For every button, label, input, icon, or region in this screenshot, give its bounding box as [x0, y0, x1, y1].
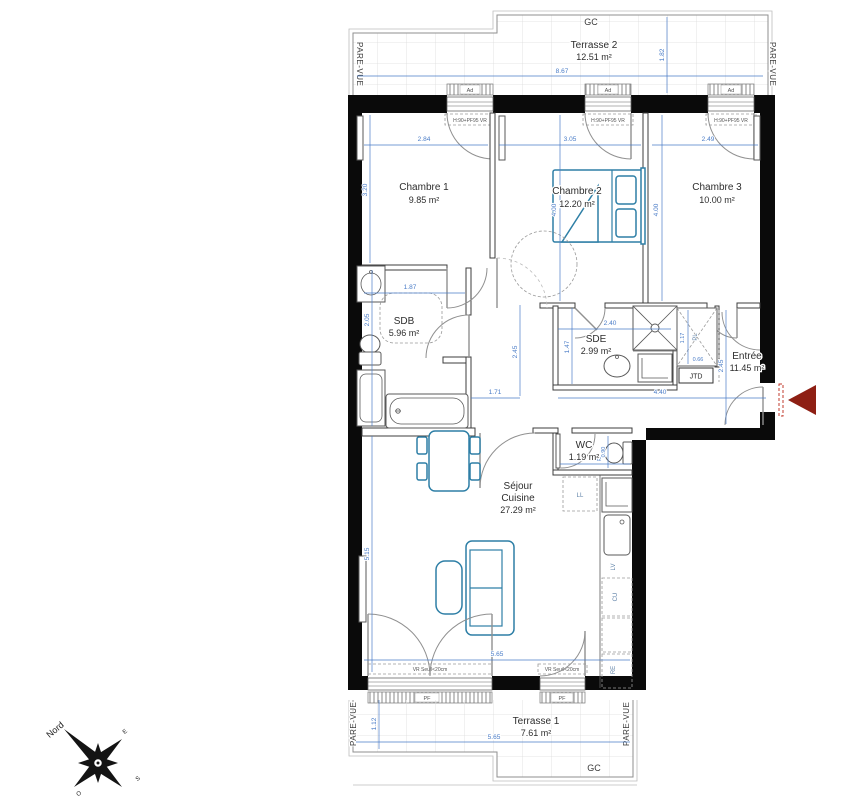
terrace-1: Terrasse 1 7.61 m² GC PARE-VUE PARE-VUE … — [349, 700, 637, 785]
window-tag: Ad — [728, 88, 735, 94]
dim-label: 1.82 — [659, 48, 666, 61]
dim-label: 1.87 — [404, 284, 417, 291]
sdb-bathtub — [386, 394, 468, 428]
room-area-wc: 1.19 m² — [569, 452, 600, 462]
window-tag: Ad — [467, 88, 474, 94]
entrance-marker — [779, 384, 816, 416]
dim-label: 5.65 — [491, 651, 504, 658]
ll-label: LL — [577, 493, 584, 499]
door-sdb — [426, 315, 469, 358]
terrace-2-area: 12.51 m² — [576, 52, 612, 62]
gc-label-bottom: GC — [587, 763, 601, 773]
sdb-toilet — [359, 335, 381, 365]
room-area-sdb: 5.96 m² — [389, 328, 420, 338]
dining-table — [417, 431, 480, 491]
compass-center-dot — [97, 762, 100, 765]
room-name-sdb: SDB — [394, 316, 415, 327]
compass-west-label: O — [76, 790, 84, 798]
room-name-sejour: Séjour — [504, 481, 534, 492]
compass-east-label: E — [122, 729, 129, 736]
dim-label: 1.12 — [371, 717, 378, 730]
lv-label: LV — [611, 564, 617, 571]
door-chambre2 — [497, 258, 547, 308]
room-area-chambre1: 9.85 m² — [409, 195, 440, 205]
pl-label: PL — [693, 333, 699, 341]
room-area-chambre3: 10.00 m² — [699, 195, 735, 205]
dim-label: 8.67 — [556, 68, 569, 75]
dim-label: 1.47 — [564, 340, 571, 353]
compass-north-label: Nord — [44, 720, 65, 740]
room-name-sde: SDE — [586, 334, 607, 345]
room-name-chambre2: Chambre 2 — [552, 186, 602, 197]
window-tag: Ad — [605, 88, 612, 94]
kitchen-unit-dashed — [602, 618, 632, 652]
pare-vue-bottom-right: PARE-VUE — [622, 702, 631, 746]
window-chambre2: Ad H:90+PF95 VR — [583, 84, 633, 159]
entrance-arrow-icon — [788, 385, 816, 415]
kitchen-cabinet — [602, 478, 632, 512]
compass-south-label: S — [135, 776, 142, 783]
floor-plan: GC Terrasse 2 12.51 m² PARE-VUE PARE-VUE… — [0, 0, 863, 800]
dim-label: 2.40 — [604, 320, 617, 327]
dim-label: 0.66 — [693, 357, 704, 363]
wc-toilet — [605, 442, 632, 464]
dim-label: 2.49 — [702, 136, 715, 143]
terrace-1-tiles — [353, 700, 633, 752]
dim-label: 5.65 — [488, 734, 501, 741]
dim-label: 4.00 — [653, 203, 660, 216]
window-note: H:90+PF95 VR — [591, 118, 625, 124]
dim-label: 0.90 — [601, 447, 607, 458]
dim-label: 3.05 — [564, 136, 577, 143]
pare-vue-bottom-left: PARE-VUE — [349, 702, 358, 746]
re-label: RE — [611, 666, 617, 674]
dim-label: 1.17 — [680, 333, 686, 344]
window-note: H:90+PF95 VR — [714, 118, 748, 124]
dim-label: 4.00 — [551, 203, 558, 216]
room-area-chambre2: 12.20 m² — [559, 199, 595, 209]
dim-label: 2.45 — [512, 345, 519, 358]
radiator — [499, 116, 505, 160]
door-entree-closet — [722, 312, 760, 350]
terrace-2-tiles — [497, 15, 768, 95]
room-area-sde: 2.99 m² — [581, 346, 612, 356]
room-name-chambre1: Chambre 1 — [399, 182, 449, 193]
sdb-vanity — [357, 370, 385, 426]
dim-label: 5.15 — [364, 547, 371, 560]
jtd-label: JTD — [690, 374, 703, 381]
window-chambre1: Ad H:90+PF95 VR — [445, 84, 495, 159]
door-sejour — [480, 433, 535, 488]
compass-rose: Nord E S O — [44, 720, 141, 798]
dim-label: 4.40 — [654, 389, 667, 396]
dim-label: 3.20 — [362, 183, 369, 196]
terrace-1-name: Terrasse 1 — [513, 716, 560, 727]
coffee-table — [436, 561, 462, 614]
room-name-wc: WC — [576, 440, 593, 451]
dim-label: 2.05 — [364, 313, 371, 326]
dim-label: 2.45 — [718, 359, 725, 372]
dim-label: 1.71 — [489, 389, 502, 396]
terrace-1-tiles — [497, 752, 633, 777]
terrace-2: GC Terrasse 2 12.51 m² PARE-VUE PARE-VUE… — [349, 11, 777, 95]
radiator — [357, 116, 363, 160]
jtd-box: JTD — [679, 368, 713, 383]
sde-washbasin — [604, 355, 630, 377]
room-name-entree: Entrée — [732, 351, 762, 362]
window-chambre3: Ad H:90+PF95 VR — [706, 84, 756, 159]
room-name-chambre3: Chambre 3 — [692, 182, 742, 193]
window-pf2: VR Seuil<20cm PF — [538, 631, 587, 703]
door-entrance — [725, 387, 763, 425]
terrace-1-area: 7.61 m² — [521, 728, 552, 738]
room-area-entree: 11.45 m² — [730, 363, 765, 373]
gc-label-top: GC — [584, 17, 598, 27]
cu-label: CU — [613, 593, 619, 602]
sofa — [466, 541, 514, 635]
dim-label: 2.84 — [418, 136, 431, 143]
room-name-cuisine: Cuisine — [501, 493, 535, 504]
sde-shower — [633, 306, 677, 350]
sde-washer — [638, 354, 672, 382]
radiator — [359, 556, 366, 622]
pare-vue-top-right: PARE-VUE — [768, 42, 777, 86]
room-area-sejour: 27.29 m² — [500, 505, 536, 515]
entrance-door-dashed — [779, 384, 783, 416]
floor-plan-drawing: GC Terrasse 2 12.51 m² PARE-VUE PARE-VUE… — [0, 0, 863, 800]
radiator — [754, 116, 760, 160]
window-note: H:90+PF95 VR — [453, 118, 487, 124]
terrace-2-name: Terrasse 2 — [571, 40, 618, 51]
pare-vue-top-left: PARE-VUE — [355, 42, 364, 86]
sdb-washbasin — [357, 266, 385, 302]
kitchen-sink — [604, 515, 630, 555]
